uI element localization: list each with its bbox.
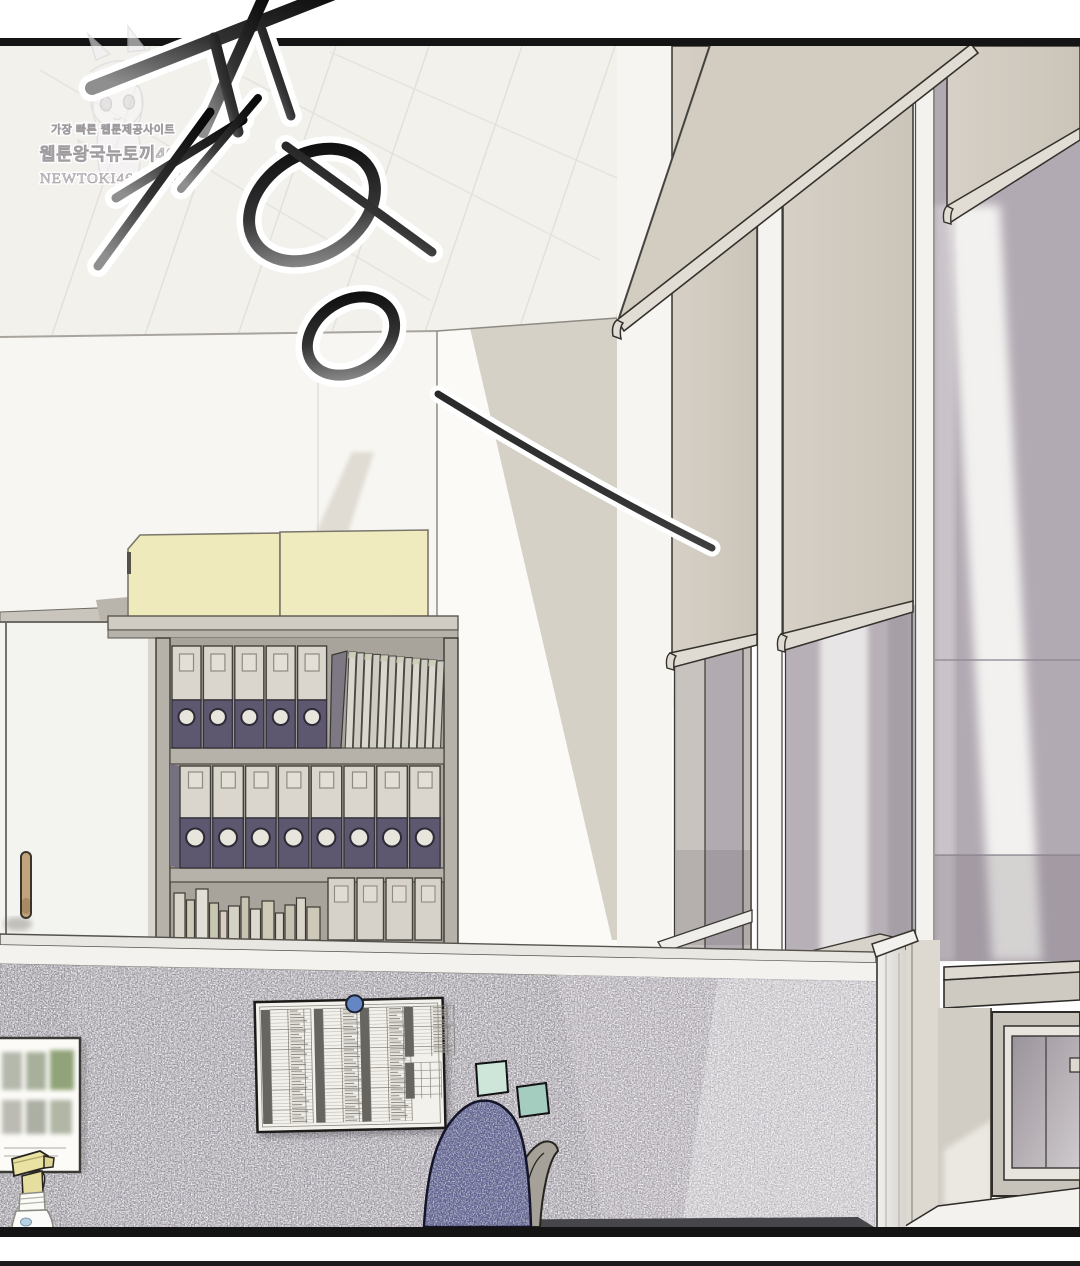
pinned-schedule-sheet [254,993,456,1138]
panel-border-bottom [0,1227,1080,1237]
window-pillar [938,1008,992,1210]
panel-border-top [0,38,1080,46]
bookshelf [108,616,458,945]
book-spine [241,897,249,940]
book-spine [220,911,227,940]
panel-art: 가장 빠른 웹툰제공사이트 가장 빠른 웹툰제공사이트 웹툰왕국뉴토끼469 웹… [0,0,1080,1266]
table-header-bar [404,1007,414,1057]
sticky-note-1 [476,1061,508,1096]
book-spine [276,913,284,940]
book-spine [210,903,219,940]
next-panel-border [0,1261,1080,1266]
window-wall [613,44,1080,972]
cabinet [0,597,156,944]
yellow-storage-boxes [127,530,428,617]
wall-poster [0,1038,87,1172]
binders-top-shelf [172,646,327,748]
wall-sliver [906,940,940,1228]
spray-nozzle [44,1156,54,1168]
window-glass [785,605,915,960]
window-mullion [915,46,935,950]
cabinet-handle [21,852,31,918]
inner-window [992,1012,1080,1196]
book-spine [196,889,208,940]
window-sill-ledge [944,961,1080,1008]
binders-middle-shelf [170,764,440,868]
window-glass [674,640,752,950]
webtoon-panel: 가장 빠른 웹툰제공사이트 가장 빠른 웹툰제공사이트 웹툰왕국뉴토끼469 웹… [0,0,1080,1266]
book-spine [285,905,295,940]
book-spine [174,893,185,940]
book-spine [307,907,320,940]
window-latch [1070,1058,1080,1072]
svg-text:가장 빠른 웹툰제공사이트: 가장 빠른 웹툰제공사이트 [51,122,175,136]
book-spine [251,909,261,940]
book-spine [229,906,240,940]
book-spine [187,900,195,940]
push-pin [346,995,363,1012]
sticky-note-2 [517,1083,549,1117]
book-spine [297,898,306,940]
book-spine [262,901,274,940]
